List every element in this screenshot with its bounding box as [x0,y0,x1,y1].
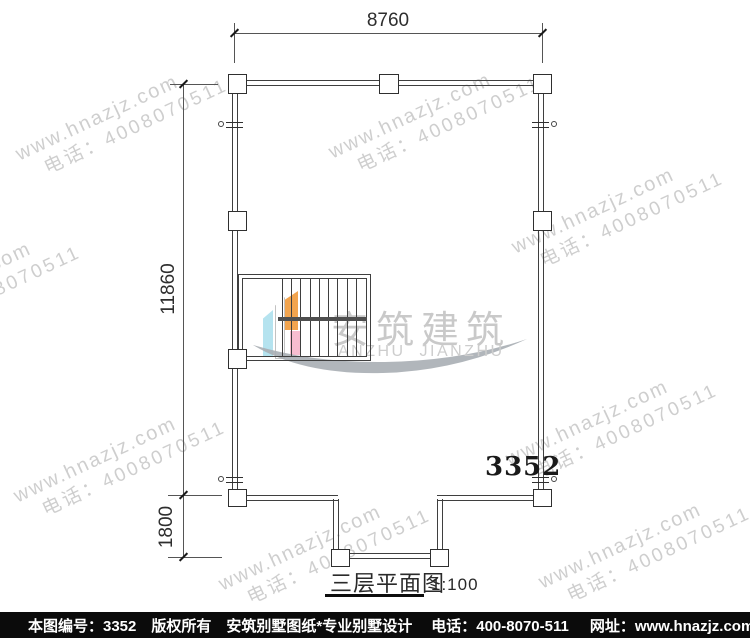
wall-break-circle [551,121,557,127]
extension-line [234,23,235,63]
wall-porch-left-side [333,499,339,553]
footer-sheet-number: 本图编号：3352 [28,615,136,636]
wall-break-mark [532,482,549,483]
wall-break-mark [226,122,243,123]
footer-website: 网址：www.hnazjz.com [590,615,750,636]
wall-break-mark [532,477,549,478]
watermark: www.hnazjz.com电话：4008070511 [0,218,85,355]
dimension-value-top: 8760 [348,10,428,32]
footer-phone: 电话：400-8070-511 [431,615,569,636]
wall-break-mark [226,127,243,128]
column [533,74,552,94]
column [379,74,399,94]
footer-company-slogan: 安筑别墅图纸*专业别墅设计 [226,615,412,636]
wall-porch-left-top [236,495,338,501]
wall-break-circle [551,476,557,482]
column [228,74,247,94]
column [533,489,552,507]
dimension-line-left [183,84,184,558]
drawing-scale: 1:100 [431,575,479,595]
watermark: www.hnazjz.com电话：4008070511 [535,479,750,616]
wall-break-circle [218,476,224,482]
wall-break-mark [226,477,243,478]
wall-break-mark [532,127,549,128]
footer-copyright: 版权所有 [151,615,211,636]
extension-line [170,84,218,85]
column [533,211,552,231]
wall-break-mark [226,482,243,483]
wall-break-circle [218,121,224,127]
footer-bar: 本图编号：3352 版权所有 安筑别墅图纸*专业别墅设计 电话：400-8070… [0,612,750,638]
watermark: www.hnazjz.com电话：4008070511 [10,393,230,530]
wall-porch-bottom [341,553,438,559]
watermark: www.hnazjz.com电话：4008070511 [12,51,232,188]
stair-handrail [278,317,367,321]
watermark: www.hnazjz.com电话：4008070511 [215,481,435,618]
extension-line [168,495,222,496]
column [430,549,449,567]
title-underline [325,594,424,597]
column [331,549,350,567]
floor-plan-sheet: www.hnazjz.com电话：4008070511 www.hnazjz.c… [0,0,750,640]
watermark: www.hnazjz.com电话：4008070511 [325,49,545,186]
column [228,211,247,231]
extension-line [542,23,543,63]
dimension-line-top [234,33,542,34]
wall-porch-right-top [437,495,542,501]
column [228,489,247,507]
wall-right [538,84,544,497]
wall-porch-right-side [437,499,443,553]
extension-line [168,557,222,558]
wall-break-mark [532,122,549,123]
column [228,349,247,369]
plan-number: 3352 [485,452,561,482]
